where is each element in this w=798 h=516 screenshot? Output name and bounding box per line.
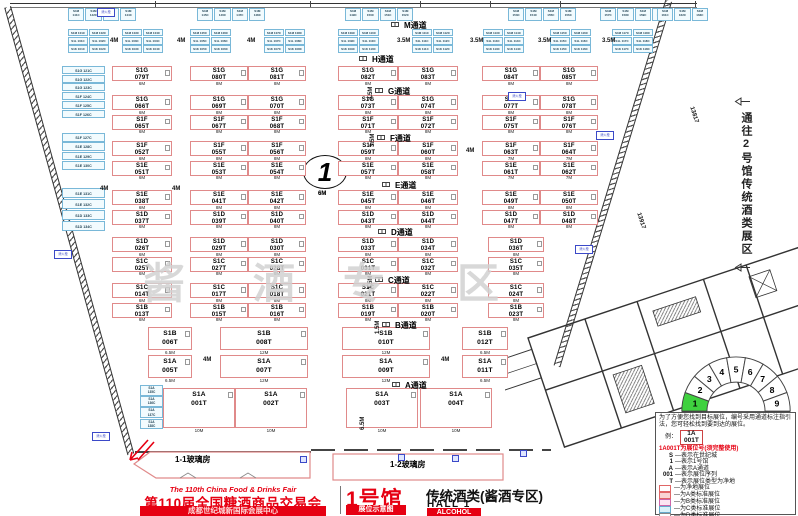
booth-S1G-078T[interactable]: S1G078T — [540, 95, 598, 110]
booth-S1D-133C[interactable]: S1D 133C — [62, 210, 105, 220]
socket-mark — [300, 392, 305, 398]
booth-S1E-053T[interactable]: S1E053T — [190, 161, 248, 176]
aisle-label-B: B通道 — [395, 320, 417, 331]
booth-S1E-130C[interactable]: S1E 130C — [62, 161, 105, 170]
booth-S1D-134C[interactable]: S1D 134C — [62, 221, 105, 231]
booth-S1K-109C[interactable]: S1K 109C — [338, 45, 358, 52]
booth-S1E-050T[interactable]: S1E050T — [540, 190, 598, 205]
socket-mark — [228, 392, 233, 398]
corridor-note: 通往2号馆传统酒类展区 — [736, 112, 754, 256]
booth-size: 8M — [248, 176, 306, 180]
booth-S1L-107C[interactable]: S1L 107C — [264, 37, 284, 44]
watermark-char: 酱 — [143, 250, 185, 311]
aisle-dim: 1.5M — [375, 321, 381, 334]
booth-S1L-108C[interactable]: S1L 108C — [285, 37, 305, 44]
socket-mark — [391, 119, 396, 125]
booth-size: 10M — [420, 429, 492, 433]
socket-mark — [451, 194, 456, 200]
socket-mark — [391, 70, 396, 76]
booth-size: 8M — [540, 130, 598, 134]
booth-S1F-059T[interactable]: S1F059T — [338, 141, 398, 156]
booth-S1M-103C[interactable]: S1M 103C — [122, 29, 142, 36]
socket-mark — [537, 261, 542, 267]
legend-swatch-line: —为B类标准展位 — [659, 499, 792, 506]
booth-S1M-101C[interactable]: S1M 101C — [68, 29, 88, 36]
svg-text:9: 9 — [775, 399, 780, 409]
booth-S1M-114C[interactable]: S1M 114C — [504, 29, 524, 36]
booth-S1D-048T[interactable]: S1D048T — [540, 210, 598, 225]
booth-S1F-125C[interactable]: S1F 125C — [62, 101, 105, 109]
booth-S1M-107C[interactable]: S1M 107C — [264, 29, 284, 36]
booth-size: 10M — [163, 429, 235, 433]
socket-mark — [241, 214, 246, 220]
arrow-up-icon — [734, 96, 752, 107]
socket-mark — [591, 99, 596, 105]
booth-S1K-118C[interactable]: S1K 118C — [633, 45, 653, 52]
socket-mark — [241, 287, 246, 293]
booth-S1E-049T[interactable]: S1E049T — [482, 190, 540, 205]
booth-S1G-079T[interactable]: S1G079T — [112, 66, 172, 81]
booth-S1B-010T[interactable]: S1B010T — [342, 327, 430, 350]
socket-mark — [299, 99, 304, 105]
booth-S1G-122C[interactable]: S1G 122C — [62, 75, 105, 83]
booth-S1C-017T[interactable]: S1C017T — [190, 283, 248, 298]
dim-label: 4M — [441, 357, 449, 363]
booth-S1K-102C[interactable]: S1K 102C — [89, 45, 109, 52]
socket-mark — [241, 307, 246, 313]
booth-S1M-116C[interactable]: S1M 116C — [571, 29, 591, 36]
socket-mark — [165, 145, 170, 151]
socket-mark — [391, 307, 396, 313]
booth-S1K-111C[interactable]: S1K 111C — [412, 45, 432, 52]
svg-text:2: 2 — [698, 385, 703, 395]
wall-tick — [310, 1, 311, 7]
booth-S1E-046T[interactable]: S1E046T — [398, 190, 458, 205]
hydrant-box-icon — [520, 450, 527, 457]
booth-S1A-007T[interactable]: S1A007T — [220, 355, 308, 378]
booth-S1E-131C[interactable]: S1E 131C — [62, 188, 105, 198]
dim-label: 4M — [100, 186, 108, 192]
dim-label: 3.5M — [602, 38, 615, 44]
booth-S1B-012T[interactable]: S1B012T — [462, 327, 508, 350]
booth-S1M-110C[interactable]: S1M 110C — [359, 29, 379, 36]
booth-S1K-108C[interactable]: S1K 108C — [285, 45, 305, 52]
booth-size: 8M — [482, 130, 540, 134]
booth-S1A-136C[interactable]: S1A136C — [140, 396, 163, 407]
booth-S1L-106C[interactable]: S1L 106C — [211, 37, 231, 44]
booth-S1M-148C[interactable]: S1M148C — [249, 8, 265, 21]
booth-S1F-067T[interactable]: S1F067T — [190, 115, 248, 130]
dim-label: 3.5M — [397, 38, 410, 44]
booth-S1E-038T[interactable]: S1E038T — [112, 190, 172, 205]
booth-S1G-070T[interactable]: S1G070T — [248, 95, 306, 110]
booth-S1D-039T[interactable]: S1D039T — [190, 210, 248, 225]
booth-S1L-110C[interactable]: S1L 110C — [359, 37, 379, 44]
svg-text:7: 7 — [760, 374, 765, 384]
booth-S1M-115C[interactable]: S1M 115C — [550, 29, 570, 36]
booth-S1K-105C[interactable]: S1K 105C — [190, 45, 210, 52]
socket-mark — [451, 307, 456, 313]
booth-S1M-106C[interactable]: S1M 106C — [211, 29, 231, 36]
booth-S1M-145C[interactable]: S1M145C — [197, 8, 213, 21]
socket-mark — [501, 331, 506, 337]
booth-S1K-101C[interactable]: S1K 101C — [68, 45, 88, 52]
socket-mark — [591, 214, 596, 220]
booth-S1M-158C[interactable]: S1M158C — [617, 8, 633, 21]
booth-S1K-106C[interactable]: S1K 106C — [211, 45, 231, 52]
booth-S1F-064T[interactable]: S1F064T — [540, 141, 598, 156]
booth-S1F-068T[interactable]: S1F068T — [248, 115, 306, 130]
booth-S1E-132C[interactable]: S1E 132C — [62, 199, 105, 209]
booth-size: 8M — [190, 318, 248, 322]
booth-S1D-037T[interactable]: S1D037T — [112, 210, 172, 225]
socket-mark — [533, 214, 538, 220]
booth-S1D-044T[interactable]: S1D044T — [398, 210, 458, 225]
door-icon — [377, 135, 385, 140]
map-badge: 展位示意图 — [346, 505, 406, 515]
booth-S1F-052T[interactable]: S1F052T — [112, 141, 172, 156]
booth-S1K-116C[interactable]: S1K 116C — [571, 45, 591, 52]
booth-S1B-008T[interactable]: S1B008T — [220, 327, 308, 350]
door-icon — [392, 382, 400, 387]
aisle-label-E: E通道 — [395, 180, 416, 191]
socket-mark — [165, 99, 170, 105]
socket-mark — [299, 194, 304, 200]
booth-S1L-116C[interactable]: S1L 116C — [571, 37, 591, 44]
socket-mark — [533, 194, 538, 200]
booth-size: 8M — [488, 318, 544, 322]
socket-mark — [391, 214, 396, 220]
venue-name: 成都世纪城新国际会展中心 — [140, 506, 326, 516]
booth-S1K-110C[interactable]: S1K 110C — [359, 45, 379, 52]
socket-mark — [591, 70, 596, 76]
booth-S1M-150C[interactable]: S1M150C — [362, 8, 378, 21]
socket-mark — [299, 70, 304, 76]
booth-S1F-126C[interactable]: S1F 126C — [62, 110, 105, 118]
booth-size: 6.5M — [462, 351, 508, 355]
booth-S1B-015T[interactable]: S1B015T — [190, 303, 248, 318]
booth-S1M-108C[interactable]: S1M 108C — [285, 29, 305, 36]
booth-S1M-159C[interactable]: S1M159C — [635, 8, 651, 21]
socket-mark — [423, 359, 428, 365]
legend-example-booth: 1A 001T — [680, 430, 703, 445]
booth-S1M-113C[interactable]: S1M 113C — [483, 29, 503, 36]
booth-S1M-162C[interactable]: S1M162C — [674, 8, 690, 21]
hall-locator-map: 123456789 — [676, 354, 796, 414]
booth-S1M-157C[interactable]: S1M157C — [600, 8, 616, 21]
booth-S1E-041T[interactable]: S1E041T — [190, 190, 248, 205]
booth-S1E-042T[interactable]: S1E042T — [248, 190, 306, 205]
door-icon — [378, 229, 386, 234]
booth-S1M-156C[interactable]: S1M156C — [560, 8, 576, 21]
dim-label: 4M — [203, 357, 211, 363]
booth-S1A-004T[interactable]: S1A004T — [420, 388, 492, 428]
booth-S1D-043T[interactable]: S1D043T — [338, 210, 398, 225]
booth-S1L-105C[interactable]: S1L 105C — [190, 37, 210, 44]
socket-mark — [591, 194, 596, 200]
socket-mark — [241, 119, 246, 125]
legend-swatches: —为净地展位—为A类标准展位—为B类标准展位—为C类标准展位—为D类标准展位 — [659, 485, 792, 516]
booth-S1L-113C[interactable]: S1L 113C — [483, 37, 503, 44]
booth-S1M-151C[interactable]: S1M151C — [380, 8, 396, 21]
legend-example-label: 例： — [665, 434, 677, 441]
socket-mark — [299, 261, 304, 267]
booth-S1F-055T[interactable]: S1F055T — [190, 141, 248, 156]
dim-label: 3.5M — [470, 38, 483, 44]
booth-S1E-062T[interactable]: S1E062T — [540, 161, 598, 176]
booth-S1M-118C[interactable]: S1M 118C — [633, 29, 653, 36]
socket-mark — [391, 145, 396, 151]
booth-S1G-123C[interactable]: S1G 123C — [62, 83, 105, 91]
booth-S1G-081T[interactable]: S1G081T — [248, 66, 306, 81]
booth-S1L-109C[interactable]: S1L 109C — [338, 37, 358, 44]
wall-tick — [420, 1, 421, 7]
door-icon — [375, 88, 383, 93]
socket-mark — [299, 307, 304, 313]
socket-mark — [241, 194, 246, 200]
socket-mark — [537, 287, 542, 293]
legend-keys: S—表示在世纪城1—表示1号馆A—表示A通道001—表示展位序列T—表示展位类型… — [659, 453, 792, 485]
booth-S1A-138C[interactable]: S1A138C — [140, 419, 163, 430]
socket-mark — [451, 241, 456, 247]
dim-label: 4M — [247, 38, 255, 44]
socket-mark — [241, 70, 246, 76]
booth-S1D-047T[interactable]: S1D047T — [482, 210, 540, 225]
booth-S1A-135C[interactable]: S1A135C — [140, 385, 163, 396]
booth-S1G-084T[interactable]: S1G084T — [482, 66, 540, 81]
booth-size: 8M — [338, 82, 398, 86]
booth-S1E-054T[interactable]: S1E054T — [248, 161, 306, 176]
booth-size: 12M — [220, 351, 308, 355]
booth-size: 10M — [346, 429, 418, 433]
booth-S1L-101C[interactable]: S1L 101C — [68, 37, 88, 44]
booth-S1C-027T[interactable]: S1C027T — [190, 257, 248, 272]
socket-mark — [299, 119, 304, 125]
watermark-char: 酒 — [253, 250, 295, 311]
socket-mark — [533, 165, 538, 171]
booth-S1M-146C[interactable]: S1M146C — [214, 8, 230, 21]
booth-S1G-066T[interactable]: S1G066T — [112, 95, 172, 110]
socket-mark — [533, 119, 538, 125]
booth-size: 8M — [338, 176, 398, 180]
floor-plan: 1 6M 通往2号馆传统酒类展区 1-1玻璃房 1-2玻璃房 为 — [0, 0, 798, 516]
socket-mark — [185, 359, 190, 365]
booth-S1C-032T[interactable]: S1C032T — [398, 257, 458, 272]
booth-S1M-102C[interactable]: S1M 102C — [89, 29, 109, 36]
socket-mark — [391, 99, 396, 105]
booth-S1G-083T[interactable]: S1G083T — [398, 66, 458, 81]
booth-S1F-072T[interactable]: S1F072T — [398, 115, 458, 130]
socket-mark — [533, 99, 538, 105]
socket-mark — [451, 261, 456, 267]
booth-S1G-121C[interactable]: S1G 121C — [62, 66, 105, 74]
socket-mark — [451, 287, 456, 293]
booth-S1K-117C[interactable]: S1K 117C — [612, 45, 632, 52]
booth-size: 6.5M — [148, 351, 192, 355]
socket-mark — [591, 119, 596, 125]
booth-size: 8M — [248, 318, 306, 322]
booth-size: 8M — [248, 130, 306, 134]
door-icon — [382, 182, 390, 187]
booth-S1A-011T[interactable]: S1A011T — [462, 355, 508, 378]
booth-S1K-113C[interactable]: S1K 113C — [483, 45, 503, 52]
door-icon — [391, 22, 399, 27]
socket-mark — [391, 165, 396, 171]
booth-size: 6M — [112, 318, 172, 322]
booth-S1L-114C[interactable]: S1L 114C — [504, 37, 524, 44]
socket-mark — [299, 145, 304, 151]
booth-S1M-112C[interactable]: S1M 112C — [433, 29, 453, 36]
booth-S1M-155C[interactable]: S1M155C — [543, 8, 559, 21]
socket-mark — [301, 359, 306, 365]
booth-S1A-002T[interactable]: S1A002T — [235, 388, 307, 428]
booth-S1D-040T[interactable]: S1D040T — [248, 210, 306, 225]
booth-S1L-115C[interactable]: S1L 115C — [550, 37, 570, 44]
booth-S1E-061T[interactable]: S1E061T — [482, 161, 540, 176]
booth-S1L-102C[interactable]: S1L 102C — [89, 37, 109, 44]
booth-S1E-058T[interactable]: S1E058T — [398, 161, 458, 176]
booth-S1L-111C[interactable]: S1L 111C — [412, 37, 432, 44]
socket-mark — [451, 119, 456, 125]
socket-mark — [301, 331, 306, 337]
booth-S1E-129C[interactable]: S1E 129C — [62, 152, 105, 161]
booth-S1E-057T[interactable]: S1E057T — [338, 161, 398, 176]
fire-hydrant-tag: 消火栓 — [54, 250, 72, 259]
booth-S1M-117C[interactable]: S1M 117C — [612, 29, 632, 36]
legend-code-note: 1A001T为展位号(须完整使用) — [659, 446, 792, 453]
booth-S1E-051T[interactable]: S1E051T — [112, 161, 172, 176]
booth-S1A-001T[interactable]: S1A001T — [163, 388, 235, 428]
booth-S1M-141C[interactable]: S1M141C — [68, 8, 84, 21]
booth-S1A-003T[interactable]: S1A003T — [346, 388, 418, 428]
socket-mark — [185, 331, 190, 337]
fire-hydrant-tag: 消火栓 — [92, 432, 110, 441]
booth-S1K-112C[interactable]: S1K 112C — [433, 45, 453, 52]
booth-S1L-112C[interactable]: S1L 112C — [433, 37, 453, 44]
glass-house-2-label: 1-2玻璃房 — [390, 459, 426, 470]
fire-hydrant-tag: 消火栓 — [508, 92, 526, 101]
booth-S1F-071T[interactable]: S1F071T — [338, 115, 398, 130]
booth-S1D-029T[interactable]: S1D029T — [190, 237, 248, 252]
booth-S1E-128C[interactable]: S1E 128C — [62, 142, 105, 151]
booth-S1G-074T[interactable]: S1G074T — [398, 95, 458, 110]
booth-S1K-114C[interactable]: S1K 114C — [504, 45, 524, 52]
booth-S1B-006T[interactable]: S1B006T — [148, 327, 192, 350]
socket-mark — [591, 165, 596, 171]
socket-mark — [485, 392, 490, 398]
booth-S1M-149C[interactable]: S1M149C — [345, 8, 361, 21]
booth-S1G-069T[interactable]: S1G069T — [190, 95, 248, 110]
booth-S1M-104C[interactable]: S1M 104C — [143, 29, 163, 36]
aisle-label-G: G通道 — [388, 86, 410, 97]
booth-S1K-104C[interactable]: S1K 104C — [143, 45, 163, 52]
booth-size: 8M — [338, 225, 398, 229]
booth-S1M-109C[interactable]: S1M 109C — [338, 29, 358, 36]
dim-label: 6M — [318, 191, 326, 197]
booth-S1A-005T[interactable]: S1A005T — [148, 355, 192, 378]
booth-S1M-153C[interactable]: S1M153C — [508, 8, 524, 21]
aisle-dim: 3.5M — [368, 87, 374, 100]
title-divider — [340, 486, 341, 514]
booth-S1F-127C[interactable]: S1F 127C — [62, 133, 105, 142]
dim-label: 13817 — [688, 106, 699, 124]
booth-S1L-118C[interactable]: S1L 118C — [633, 37, 653, 44]
watermark-char: 区 — [457, 250, 499, 311]
booth-S1M-147C[interactable]: S1M147C — [232, 8, 248, 21]
booth-size: 12M — [220, 379, 308, 383]
booth-S1B-020T[interactable]: S1B020T — [398, 303, 458, 318]
booth-S1G-085T[interactable]: S1G085T — [540, 66, 598, 81]
watermark-char: 专 — [343, 250, 385, 311]
wall-tick — [490, 1, 491, 7]
booth-S1A-137C[interactable]: S1A137C — [140, 407, 163, 418]
booth-S1F-065T[interactable]: S1F065T — [112, 115, 172, 130]
booth-S1K-115C[interactable]: S1K 115C — [550, 45, 570, 52]
legend-swatch-line: —为C类标准展位 — [659, 506, 792, 513]
booth-size: 10M — [235, 429, 307, 433]
booth-S1F-076T[interactable]: S1F076T — [540, 115, 598, 130]
aisle-label-M: M通道 — [404, 20, 427, 31]
booth-S1M-161C[interactable]: S1M161C — [657, 8, 673, 21]
booth-S1M-154C[interactable]: S1M154C — [525, 8, 541, 21]
socket-mark — [391, 241, 396, 247]
booth-S1G-080T[interactable]: S1G080T — [190, 66, 248, 81]
booth-size: 8M — [248, 82, 306, 86]
booth-size: 7M — [540, 176, 598, 180]
booth-size: 8M — [482, 225, 540, 229]
booth-S1M-105C[interactable]: S1M 105C — [190, 29, 210, 36]
booth-size: 6M — [112, 225, 172, 229]
booth-S1M-163C[interactable]: S1M163C — [692, 8, 708, 21]
socket-mark — [451, 214, 456, 220]
booth-size: 6M — [112, 130, 172, 134]
booth-size: 6M — [112, 82, 172, 86]
svg-text:5: 5 — [734, 364, 739, 374]
booth-size: 8M — [398, 82, 458, 86]
aisle-label-H: H通道 — [372, 54, 394, 65]
booth-S1L-104C[interactable]: S1L 104C — [143, 37, 163, 44]
aisle-label-C: C通道 — [388, 275, 410, 286]
socket-mark — [165, 165, 170, 171]
booth-S1M-144C[interactable]: S1M144C — [120, 8, 136, 21]
booth-S1F-075T[interactable]: S1F075T — [482, 115, 540, 130]
socket-mark — [591, 145, 596, 151]
legend-swatch-line: —为A类标准展位 — [659, 492, 792, 499]
socket-mark — [391, 194, 396, 200]
socket-mark — [165, 70, 170, 76]
socket-mark — [241, 261, 246, 267]
booth-S1K-107C[interactable]: S1K 107C — [264, 45, 284, 52]
booth-size: 6.5M — [148, 379, 192, 383]
booth-S1K-103C[interactable]: S1K 103C — [122, 45, 142, 52]
booth-S1A-009T[interactable]: S1A009T — [342, 355, 430, 378]
dim-label: 13917 — [635, 212, 646, 230]
svg-text:6: 6 — [748, 367, 753, 377]
wall-tick — [695, 1, 696, 7]
booth-S1F-063T[interactable]: S1F063T — [482, 141, 540, 156]
svg-text:1: 1 — [693, 399, 698, 409]
booth-S1F-056T[interactable]: S1F056T — [248, 141, 306, 156]
booth-S1D-034T[interactable]: S1D034T — [398, 237, 458, 252]
booth-S1G-082T[interactable]: S1G082T — [338, 66, 398, 81]
booth-size: 8M — [190, 82, 248, 86]
booth-S1F-124C[interactable]: S1F 124C — [62, 92, 105, 100]
dim-label: 4M — [110, 38, 118, 44]
socket-mark — [299, 241, 304, 247]
booth-size: 8M — [190, 130, 248, 134]
booth-S1E-045T[interactable]: S1E045T — [338, 190, 398, 205]
booth-S1L-103C[interactable]: S1L 103C — [122, 37, 142, 44]
